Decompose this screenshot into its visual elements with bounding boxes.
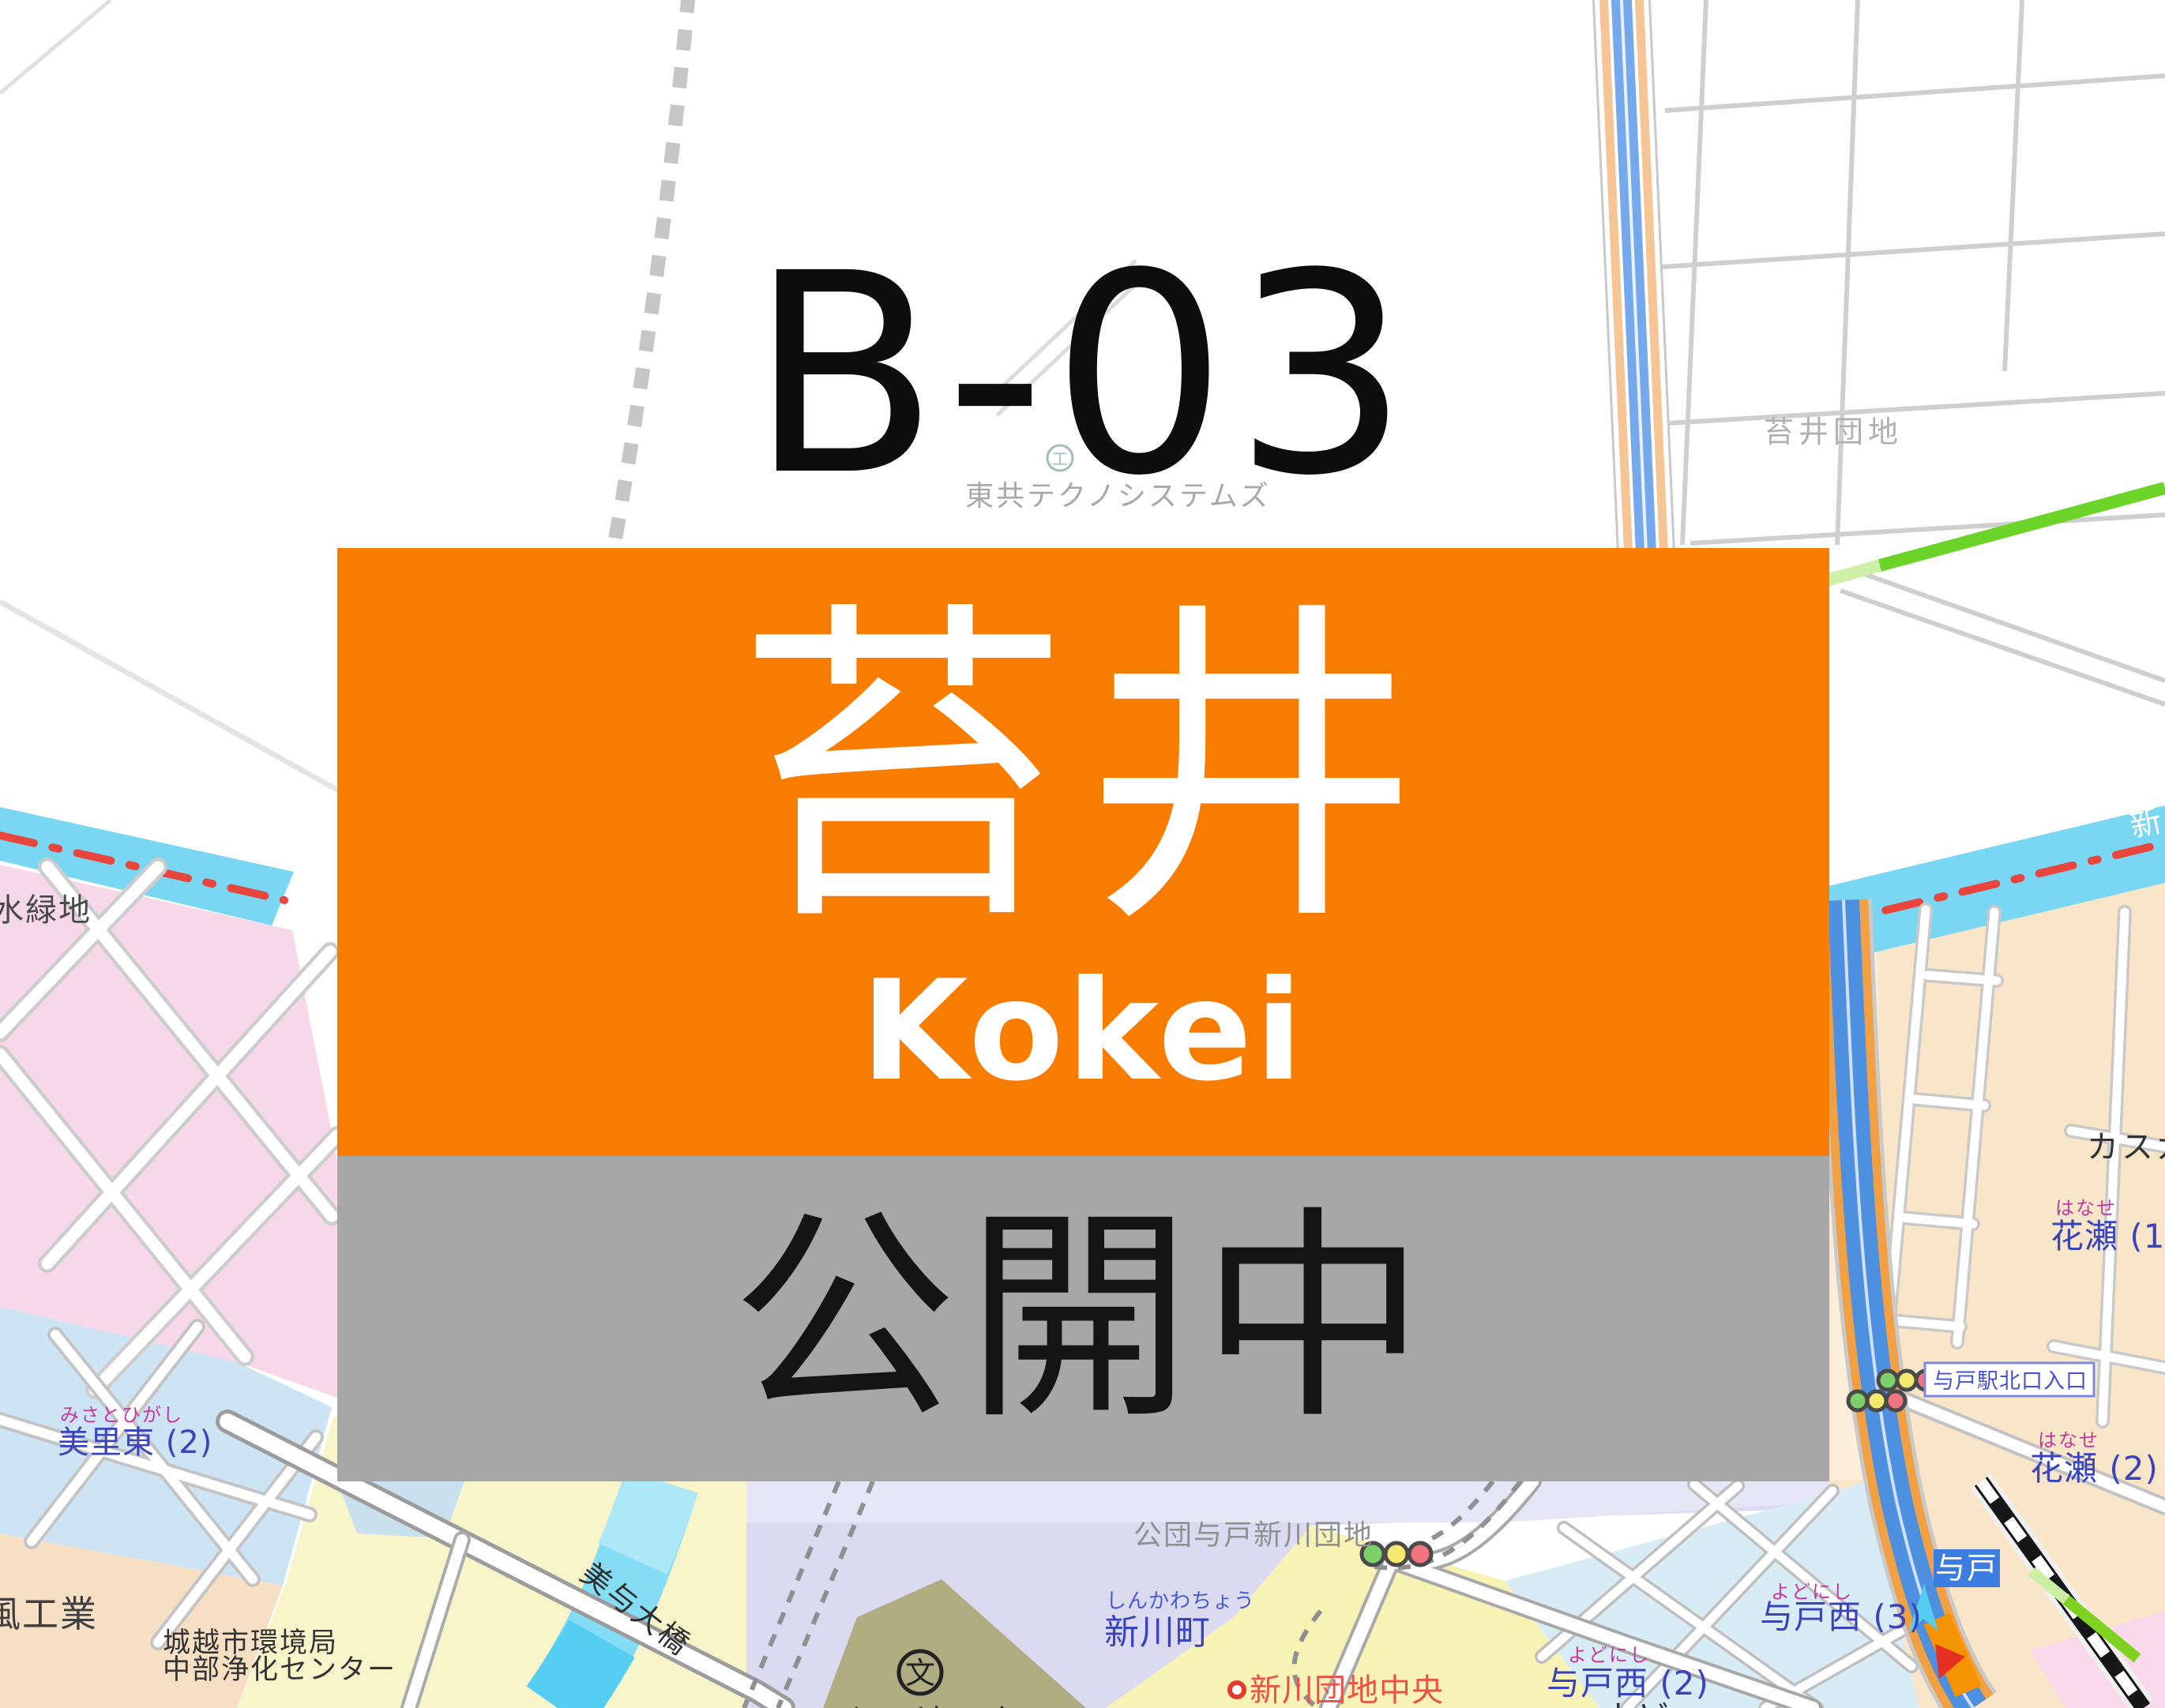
map-label-bottom-partial: よど	[1602, 1699, 1668, 1708]
station-sign-over-map: 工 文 東共テクノシステムズ 苔井団地 水緑地 みさとひがし 美里東 (2) 風…	[0, 0, 2165, 1708]
school-icon: 文	[899, 1651, 942, 1694]
map-label-kaze-kogyo: 風工業	[0, 1593, 98, 1635]
status-text: 公開中	[731, 1207, 1435, 1432]
map-label-hanase2-furigana: はなせ	[2038, 1429, 2099, 1451]
status-banner: 公開中	[337, 1156, 1829, 1481]
station-name-romaji: Kokei	[861, 963, 1306, 1101]
map-label-kasuga: カスガヒ	[2087, 1129, 2165, 1166]
map-label-misato: 美里東 (2)	[58, 1425, 212, 1461]
map-label-hanase1-furigana: はなせ	[2055, 1197, 2117, 1219]
map-label-hanase2: 花瀬 (2)	[2030, 1449, 2159, 1488]
map-label-kodan-danchi: 公団与戸新川団地	[1133, 1519, 1374, 1552]
map-label-yodonishi2-furigana: よどにし	[1568, 1644, 1650, 1666]
map-label-yodo-seifu-high: 与戸清風高	[847, 1703, 1020, 1708]
map-label-shinkawacho: 新川町	[1104, 1612, 1211, 1653]
station-badge-label: 与戸	[1935, 1551, 1998, 1586]
station-banner: 苔井 Kokei	[337, 548, 1829, 1156]
map-label-purification-center: 中部浄化センター	[163, 1654, 397, 1686]
map-label-shinkawa-danchi-chuo: 新川団地中央	[1250, 1672, 1444, 1708]
traffic-light-icon	[1848, 1391, 1905, 1410]
intersection-label-box: 与戸駅北口入口	[1925, 1363, 2094, 1396]
map-label-yodonishi2: 与戸西 (2)	[1547, 1664, 1709, 1702]
map-label-misato-furigana: みさとひがし	[60, 1404, 183, 1426]
bus-stop-icon	[1230, 1683, 1244, 1697]
map-label-yodonishi3: 与戸西 (3)	[1760, 1597, 1923, 1636]
map-label-shinkawacho-furigana: しんかわちょう	[1106, 1590, 1255, 1613]
station-name-kanji: 苔井	[735, 603, 1432, 939]
station-badge: 与戸	[1934, 1549, 2000, 1587]
map-label-hanase1: 花瀬 (1)	[2050, 1217, 2165, 1256]
map-label-mizu-ryokuchi: 水緑地	[0, 892, 92, 929]
line-code: B-03	[0, 237, 2165, 513]
map-label-yodo-sta-north: 与戸駅北口入口	[1933, 1369, 2088, 1394]
svg-text:文: 文	[905, 1656, 935, 1691]
